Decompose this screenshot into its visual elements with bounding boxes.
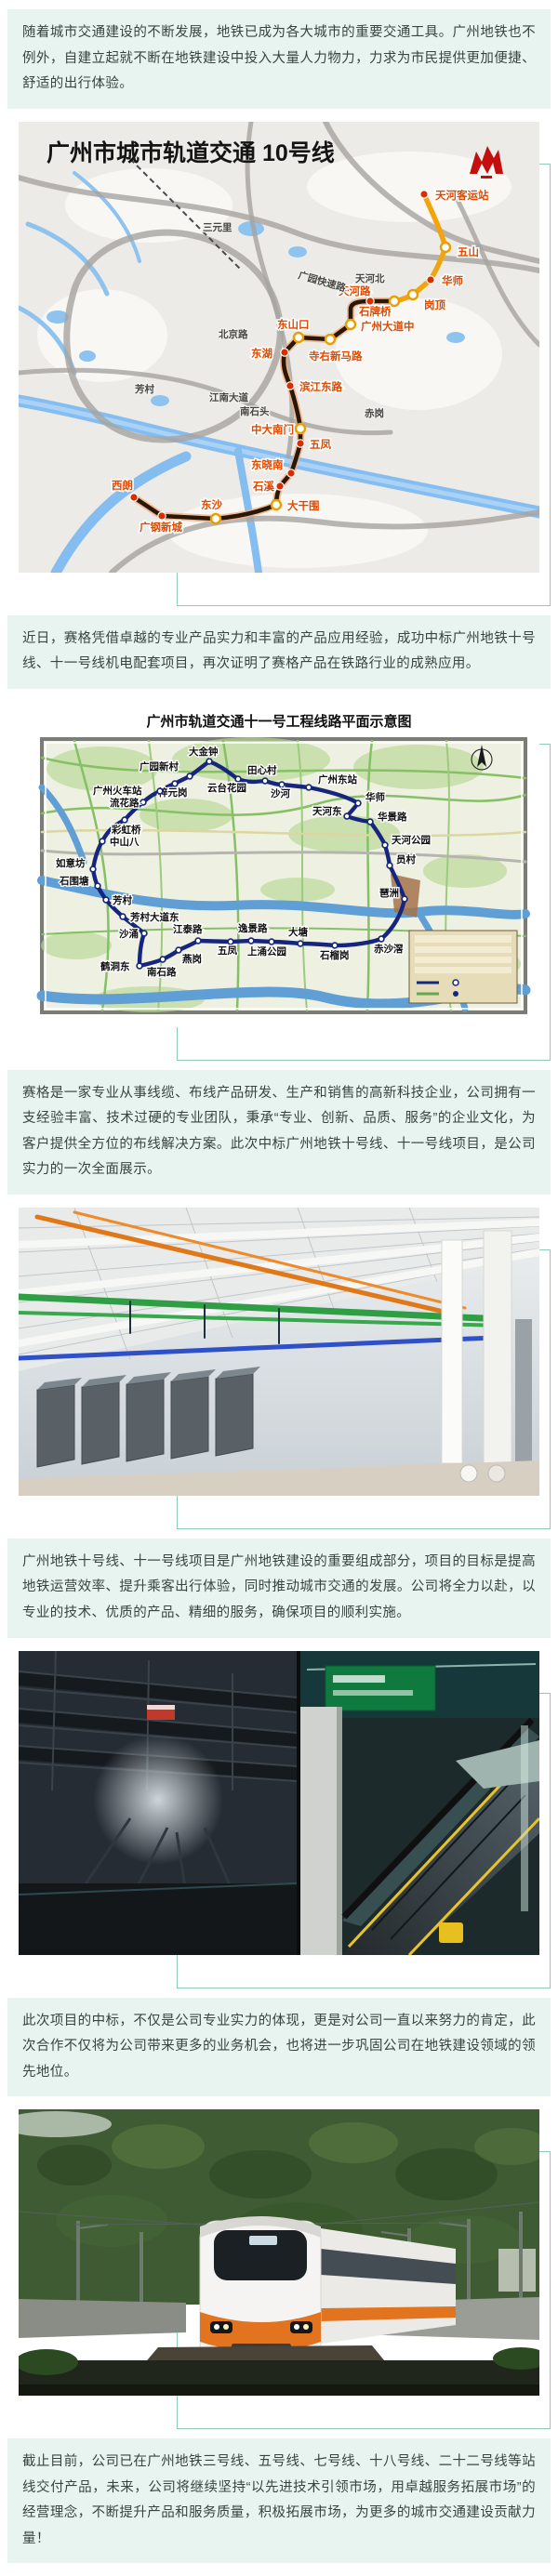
- station-dot: [420, 190, 428, 197]
- station-label: 东晓南: [251, 458, 284, 471]
- station-dot: [379, 936, 384, 942]
- station-dot: [187, 773, 193, 779]
- station-label: 沙河: [271, 788, 290, 799]
- paragraph-text: 此次项目的中标，不仅是公司专业实力的体现，更是对公司一直以来努力的肯定，此次合作…: [22, 2014, 536, 2080]
- station-label: 华师: [365, 791, 385, 803]
- station-dot: [120, 914, 126, 919]
- paragraph-text: 广州地铁十号线、十一号线项目是广州地铁建设的重要组成部分，项目的目标是提高地铁运…: [22, 1554, 536, 1620]
- viaduct-parapet-left: [19, 2299, 186, 2338]
- station-label: 寺右新马路: [309, 350, 363, 363]
- station-label: 五凤: [218, 945, 237, 957]
- station-label: 石围塘: [59, 875, 89, 887]
- station-label: 五山: [458, 245, 479, 258]
- station-dot: [157, 788, 163, 794]
- station-label: 大金钟: [189, 746, 219, 758]
- station-label: 江泰路: [173, 923, 203, 935]
- station-dot: [306, 785, 312, 790]
- equipment-cabinets: [37, 1367, 260, 1467]
- place-label: 南石头: [240, 405, 270, 417]
- station-label: 广钢新城: [139, 521, 182, 534]
- place-label: 芳村: [135, 383, 154, 395]
- station-label: 滨江东路: [299, 380, 342, 393]
- station-label: 东湖: [251, 347, 272, 360]
- article-paragraph-1: 随着城市交通建设的不断发展，地铁已成为各大城市的重要交通工具。广州地铁也不例外，…: [7, 9, 551, 109]
- legend-table: [409, 931, 517, 1003]
- station-label: 五凤: [310, 438, 331, 451]
- station-dot: [262, 778, 268, 784]
- station-label: 广州东站: [318, 773, 357, 786]
- figure-line10-map[interactable]: 天河客运站五山华师岗顶石牌桥天河路广州大道中寺右新马路东山口东湖滨江东路中大南门…: [19, 122, 539, 573]
- carousel-dot[interactable]: [460, 1465, 477, 1482]
- station-dot: [279, 782, 285, 787]
- article-paragraph-3: 赛格是一家专业从事线缆、布线产品研发、生产和销售的高新科技企业，公司拥有一支经验…: [7, 1070, 551, 1195]
- place-label: 北京路: [219, 328, 248, 340]
- station-label: 中大南门: [251, 423, 294, 436]
- station-label: 上涌公园: [247, 945, 286, 958]
- station-photos-image: [19, 1651, 539, 1955]
- station-dot: [387, 863, 392, 868]
- station-label: 广州火车站: [93, 785, 142, 797]
- station-label: 广州大道中: [361, 320, 415, 333]
- station-label: 芳村: [113, 894, 132, 906]
- station-label: 逸景路: [238, 922, 268, 934]
- train-photo-image: [19, 2109, 539, 2396]
- station-dot: [158, 511, 166, 519]
- station-label: 琶洲: [379, 888, 399, 899]
- station-label: 石榴岗: [319, 949, 350, 961]
- station-dot: [294, 333, 303, 342]
- station-label: 东沙: [201, 498, 222, 511]
- station-dot: [95, 883, 100, 889]
- photo-cable-corridor: [19, 1651, 298, 1955]
- carousel-dot[interactable]: [488, 1465, 505, 1482]
- station-dot: [141, 931, 147, 936]
- station-dot: [272, 500, 281, 509]
- place-label: 江南大道: [209, 391, 248, 403]
- station-dot: [90, 866, 96, 872]
- article-paragraph-2: 近日，赛格凭借卓越的专业产品实力和丰富的产品应用经验，成功中标广州地铁十号线、十…: [7, 615, 551, 689]
- station-label: 西朗: [112, 479, 133, 492]
- figure-3d-render[interactable]: [19, 1208, 539, 1496]
- station-dot: [286, 381, 294, 389]
- station-dot: [195, 938, 201, 944]
- line11-map-title: 广州市轨道交通十一号工程线路平面示意图: [146, 713, 411, 730]
- station-dot: [287, 469, 295, 476]
- station-label: 石溪: [252, 480, 274, 493]
- station-label: 华师: [442, 274, 463, 287]
- figure-station-photos[interactable]: [19, 1651, 539, 1955]
- station-label: 芳村大道东: [130, 911, 179, 923]
- paragraph-text: 截止目前，公司已在广州地铁三号线、五号线、七号线、十八号线、二十二号线等站线交付…: [22, 2454, 536, 2546]
- station-dot: [441, 243, 450, 252]
- station-dot: [390, 297, 399, 306]
- station-label: 云台花园: [207, 782, 246, 794]
- line10-map-title: 广州市城市轨道交通 10号线: [46, 139, 335, 166]
- caution-sign: [439, 1922, 463, 1943]
- paragraph-text: 近日，赛格凭借卓越的专业产品实力和丰富的产品应用经验，成功中标广州地铁十号线、十…: [22, 631, 536, 672]
- station-dot: [228, 939, 233, 945]
- article-paragraph-4: 广州地铁十号线、十一号线项目是广州地铁建设的重要组成部分，项目的目标是提高地铁运…: [7, 1539, 551, 1638]
- article-paragraph-5: 此次项目的中标，不仅是公司专业实力的体现，更是对公司一直以来努力的肯定，此次合作…: [7, 1998, 551, 2097]
- paragraph-text: 随着城市交通建设的不断发展，地铁已成为各大城市的重要交通工具。广州地铁也不例外，…: [22, 25, 536, 91]
- station-label: 东山口: [277, 318, 310, 331]
- station-label: 员村: [396, 853, 416, 865]
- station-dot: [297, 439, 304, 446]
- station-dot: [206, 759, 212, 764]
- station-dot: [408, 290, 418, 299]
- station-dot: [382, 842, 388, 848]
- station-dot: [332, 943, 338, 948]
- station-label: 广园新村: [139, 760, 179, 773]
- station-label: 华景路: [378, 811, 407, 823]
- station-label: 石牌桥: [358, 305, 392, 318]
- station-label: 赤沙滘: [374, 943, 404, 955]
- line11-map-image: 广州市轨道交通十一号工程线路平面示意图: [19, 702, 539, 1027]
- station-dot: [402, 896, 407, 902]
- station-dot: [366, 297, 374, 304]
- place-label: 赤岗: [365, 407, 384, 419]
- station-label: 田心村: [247, 764, 277, 776]
- station-dot: [235, 776, 241, 782]
- girder-shadow: [19, 2384, 539, 2396]
- station-label: 南石路: [147, 966, 177, 978]
- station-dot: [140, 799, 146, 805]
- station-dot: [325, 335, 335, 344]
- bim-render-image: [19, 1208, 539, 1496]
- figure-line11-map[interactable]: 广州市轨道交通十一号工程线路平面示意图: [19, 702, 539, 1027]
- figure-train-photo[interactable]: [19, 2109, 539, 2396]
- station-dot: [296, 424, 305, 433]
- line10-map-image: 天河客运站五山华师岗顶石牌桥天河路广州大道中寺右新马路东山口东湖滨江东路中大南门…: [19, 122, 539, 573]
- station-label: 沙涌: [119, 928, 139, 940]
- station-label: 流花路: [110, 797, 139, 809]
- station-dot: [130, 493, 138, 500]
- place-label: 三元里: [203, 222, 232, 233]
- station-dot: [160, 957, 166, 962]
- station-dot: [355, 800, 361, 806]
- station-dot: [276, 482, 284, 489]
- station-dot: [427, 275, 434, 283]
- station-dot: [122, 817, 127, 823]
- station-sign: [325, 1666, 435, 1711]
- station-label: 彩虹桥: [111, 824, 141, 836]
- station-dot: [172, 781, 178, 786]
- station-dot: [176, 947, 181, 953]
- station-label: 燕岗: [182, 953, 202, 965]
- station-label: 中山八: [110, 836, 139, 848]
- place-label: 天河北: [355, 272, 385, 284]
- station-label: 天河公园: [392, 835, 431, 846]
- station-dot: [269, 939, 274, 945]
- station-dot: [346, 320, 355, 329]
- photo-seam: [297, 1651, 300, 1955]
- article-paragraph-6: 截止目前，公司已在广州地铁三号线、五号线、七号线、十八号线、二十二号线等站线交付…: [7, 2438, 551, 2563]
- distant-building: [498, 2249, 536, 2292]
- station-dot: [281, 348, 288, 355]
- station-dot: [344, 813, 350, 819]
- station-label: 大塘: [288, 926, 308, 938]
- station-label: 大干围: [287, 499, 320, 512]
- station-dot: [298, 941, 303, 946]
- station-dot: [211, 514, 220, 523]
- station-dot: [100, 839, 105, 844]
- station-label: 岗顶: [424, 298, 445, 311]
- station-dot: [248, 938, 254, 944]
- paragraph-text: 赛格是一家专业从事线缆、布线产品研发、生产和销售的高新科技企业，公司拥有一支经验…: [22, 1086, 536, 1178]
- station-label: 天河客运站: [435, 189, 489, 202]
- station-label: 天河东: [312, 805, 342, 817]
- station-dot: [367, 819, 373, 825]
- station-label: 如意坊: [56, 857, 86, 869]
- station-label: 鹤洞东: [100, 960, 130, 972]
- photo-escalator: [299, 1651, 539, 1955]
- station-dot: [103, 897, 109, 903]
- station-dot: [137, 963, 142, 969]
